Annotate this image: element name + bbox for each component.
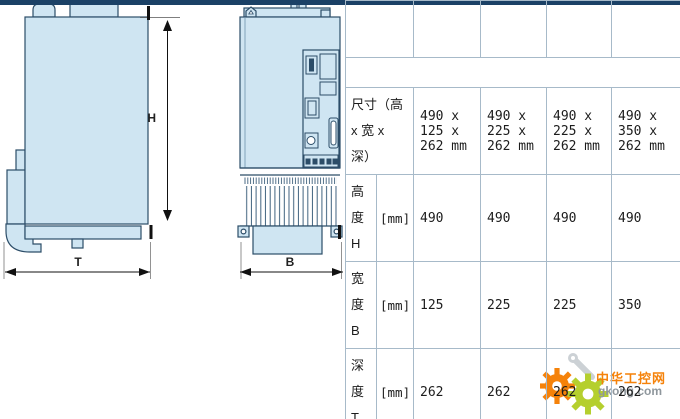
front-view-drawing — [238, 1, 342, 254]
unit-depth: [mm] — [377, 349, 414, 419]
model-header-w0100: HCS03.1E -W0100 — [481, 1, 547, 58]
width-w0150: 225 — [547, 262, 612, 349]
depth-w0070: 262 — [414, 349, 481, 419]
row-label-height: 高 度 H — [346, 175, 377, 262]
section-header-cell: 规格 — [346, 58, 680, 88]
connector-box-4-slot — [331, 121, 336, 145]
side-top-bump-wide — [70, 4, 118, 17]
model-header-w0070: HCS03.1E -W0070 — [414, 1, 481, 58]
height-w0070: 490 — [414, 175, 481, 262]
connector-box-1 — [320, 54, 336, 79]
depth-dim-label: T — [74, 255, 82, 269]
side-bottom-tab — [72, 239, 83, 248]
side-mount-tab-lower — [7, 170, 25, 224]
height-w0210: 490 — [612, 175, 680, 262]
connector-box-3-slot — [308, 101, 316, 115]
spec-table: HCS03.1E -W0070 HCS03.1E -W0100 HCS03.1E… — [345, 0, 680, 419]
model-header-w0150: HCS03.1E -W0150 — [547, 1, 612, 58]
dimensions-w0070: 490 x 125 x 262 mm — [414, 88, 481, 175]
height-dim-label: H — [147, 111, 156, 125]
side-view-body — [25, 17, 148, 224]
model-header-w0210: HCS03.1E -W0210 — [612, 1, 680, 58]
width-w0070: 125 — [414, 262, 481, 349]
height-w0150: 490 — [547, 175, 612, 262]
front-foot-left-hole — [241, 229, 246, 234]
width-dim-label: B — [286, 255, 295, 269]
table-row-depth: 深 度 T [mm] 262 262 262 262 — [346, 349, 680, 419]
width-w0100: 225 — [481, 262, 547, 349]
front-top-plate — [244, 8, 330, 17]
front-terminal-box — [253, 226, 322, 254]
dimensions-w0210: 490 x 350 x 262 mm — [612, 88, 680, 175]
row-label-depth: 深 度 T — [346, 349, 377, 419]
table-row-height: 高 度 H [mm] 490 490 490 490 — [346, 175, 680, 262]
table-header-row: HCS03.1E -W0070 HCS03.1E -W0100 HCS03.1E… — [346, 1, 680, 58]
height-w0100: 490 — [481, 175, 547, 262]
page: H T — [0, 0, 680, 419]
depth-w0150: 262 — [547, 349, 612, 419]
table-row-dimensions: 尺寸（高 x 宽 x 深） 490 x 125 x 262 mm 490 x 2… — [346, 88, 680, 175]
connector-knob — [307, 137, 315, 145]
width-w0210: 350 — [612, 262, 680, 349]
unit-width: [mm] — [377, 262, 414, 349]
connector-slot — [310, 59, 314, 71]
depth-w0210: 262 — [612, 349, 680, 419]
front-top-block — [321, 10, 330, 17]
heatsink-fins — [243, 186, 337, 226]
dimensions-w0150: 490 x 225 x 262 mm — [547, 88, 612, 175]
row-label-width: 宽 度 B — [346, 262, 377, 349]
side-top-bump-round — [33, 4, 55, 17]
side-view-drawing — [6, 4, 148, 252]
depth-w0100: 262 — [481, 349, 547, 419]
section-row: 规格 — [346, 58, 680, 88]
technical-drawings: H T — [0, 0, 348, 290]
unit-height: [mm] — [377, 175, 414, 262]
heatsink-tick-row — [243, 178, 337, 185]
connector-box-2 — [320, 82, 336, 95]
corner-cell — [346, 1, 414, 58]
dimensions-w0100: 490 x 225 x 262 mm — [481, 88, 547, 175]
side-bottom-base — [25, 226, 141, 239]
side-mount-tab-upper — [16, 150, 25, 171]
table-row-width: 宽 度 B [mm] 125 225 225 350 — [346, 262, 680, 349]
row-label-dimensions: 尺寸（高 x 宽 x 深） — [346, 88, 414, 175]
